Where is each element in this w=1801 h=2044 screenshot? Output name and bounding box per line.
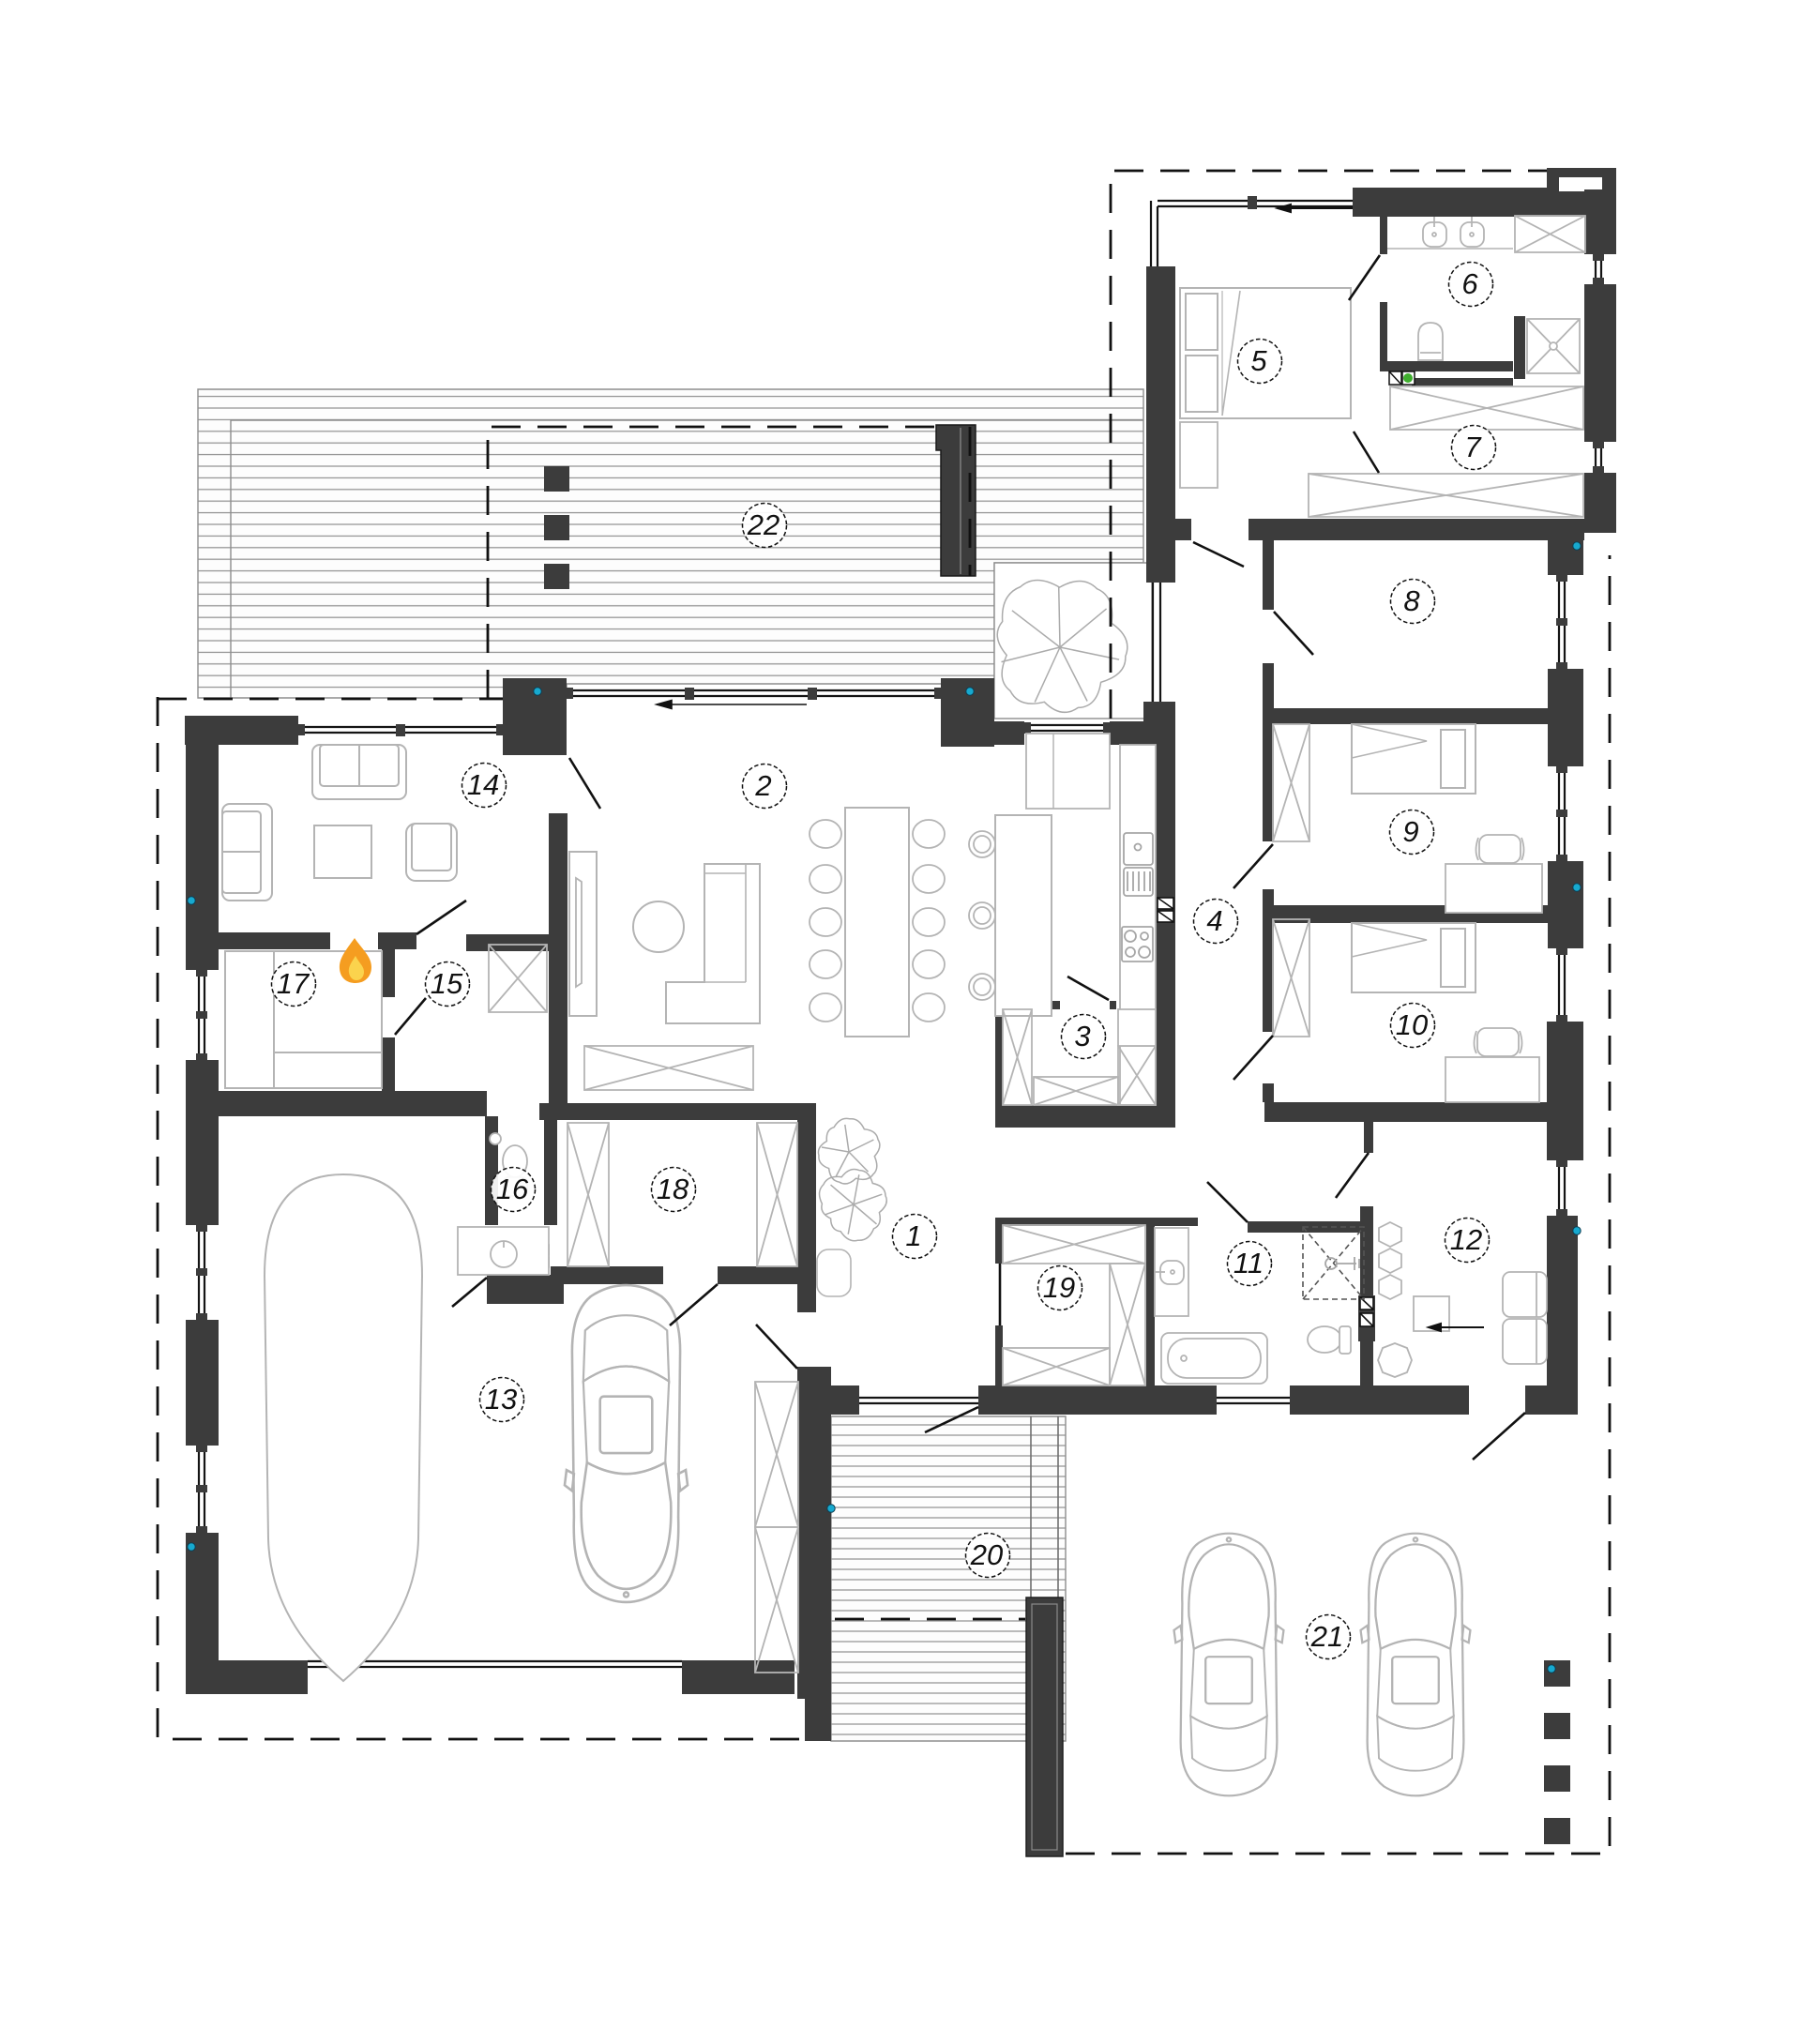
- svg-text:18: 18: [657, 1173, 689, 1205]
- svg-text:6: 6: [1461, 267, 1478, 300]
- svg-text:19: 19: [1043, 1271, 1075, 1304]
- svg-text:15: 15: [431, 967, 463, 1000]
- svg-text:20: 20: [970, 1538, 1003, 1571]
- svg-text:21: 21: [1310, 1620, 1343, 1653]
- svg-text:11: 11: [1233, 1247, 1264, 1279]
- svg-text:17: 17: [277, 967, 310, 1000]
- svg-text:2: 2: [754, 769, 771, 802]
- svg-text:3: 3: [1074, 1020, 1090, 1052]
- svg-text:8: 8: [1403, 584, 1420, 617]
- svg-text:1: 1: [905, 1219, 921, 1252]
- svg-text:7: 7: [1464, 431, 1482, 463]
- svg-text:12: 12: [1450, 1223, 1482, 1256]
- svg-text:10: 10: [1396, 1008, 1428, 1041]
- svg-text:13: 13: [485, 1383, 517, 1416]
- svg-text:16: 16: [496, 1173, 529, 1205]
- svg-text:9: 9: [1402, 815, 1418, 848]
- svg-text:22: 22: [747, 508, 779, 541]
- svg-text:5: 5: [1250, 344, 1267, 377]
- svg-text:4: 4: [1206, 904, 1222, 937]
- svg-text:14: 14: [467, 768, 499, 801]
